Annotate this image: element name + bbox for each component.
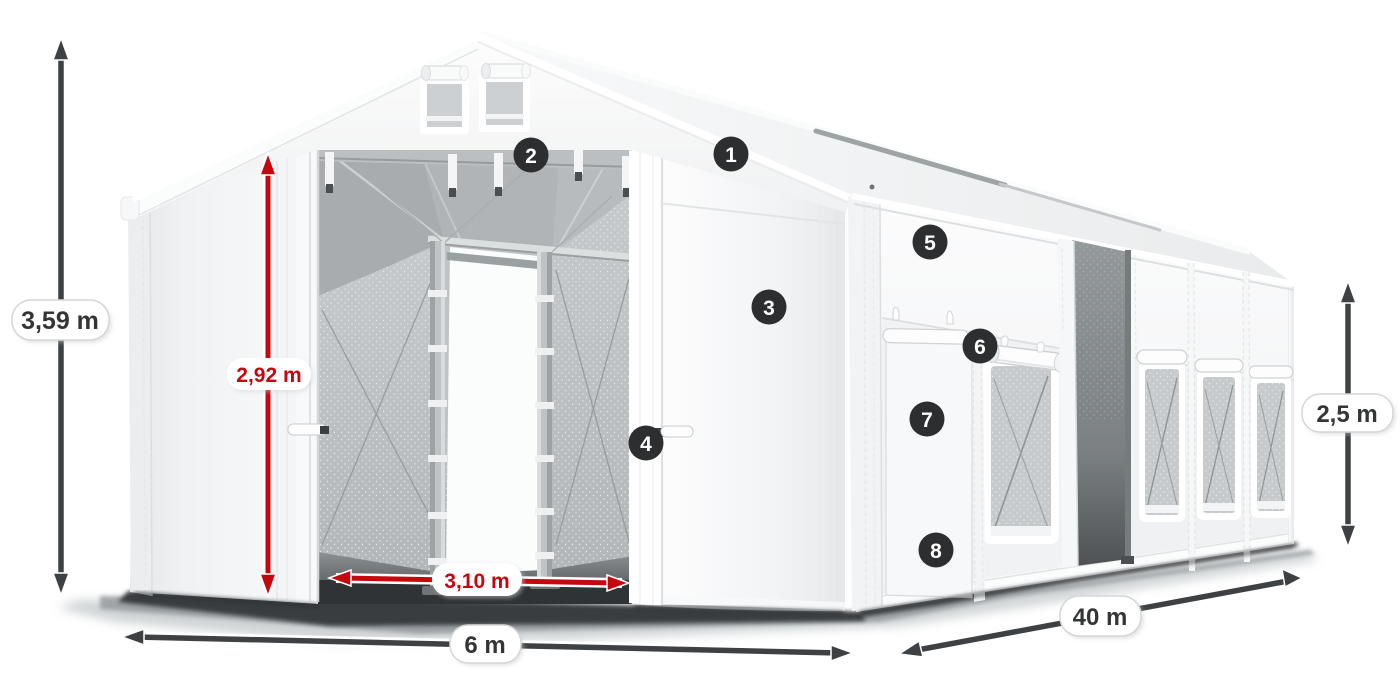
svg-text:2: 2 bbox=[525, 145, 537, 168]
svg-text:40 m: 40 m bbox=[1073, 604, 1128, 631]
svg-text:8: 8 bbox=[930, 540, 942, 563]
svg-text:6 m: 6 m bbox=[464, 632, 505, 659]
svg-text:4: 4 bbox=[640, 433, 652, 456]
svg-text:5: 5 bbox=[924, 232, 936, 255]
svg-text:3,10 m: 3,10 m bbox=[444, 570, 509, 593]
svg-text:7: 7 bbox=[921, 409, 933, 432]
svg-text:3: 3 bbox=[763, 297, 775, 320]
svg-text:3,59 m: 3,59 m bbox=[21, 307, 99, 335]
svg-text:2,5 m: 2,5 m bbox=[1316, 401, 1377, 428]
svg-text:2,92 m: 2,92 m bbox=[236, 364, 301, 387]
svg-text:1: 1 bbox=[725, 144, 737, 167]
svg-text:6: 6 bbox=[974, 336, 986, 359]
